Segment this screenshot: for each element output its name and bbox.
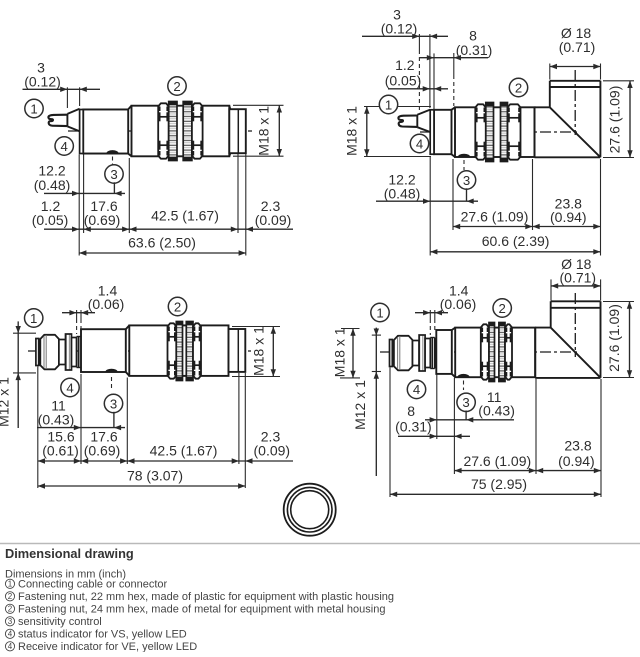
- svg-text:27.6 (1.09): 27.6 (1.09): [463, 453, 531, 469]
- svg-text:Dimensional drawing: Dimensional drawing: [5, 546, 134, 561]
- svg-text:(0.48): (0.48): [34, 177, 71, 193]
- svg-text:27.6 (1.09): 27.6 (1.09): [461, 209, 529, 225]
- svg-text:4: 4: [416, 136, 423, 151]
- svg-text:27.6 (1.09): 27.6 (1.09): [607, 86, 623, 154]
- svg-text:4: 4: [8, 642, 13, 651]
- svg-text:3: 3: [8, 617, 13, 626]
- svg-text:63.6 (2.50): 63.6 (2.50): [128, 235, 196, 251]
- svg-text:4: 4: [61, 139, 68, 154]
- svg-text:(0.61): (0.61): [42, 443, 79, 459]
- svg-text:2: 2: [174, 299, 181, 314]
- svg-text:3: 3: [462, 395, 469, 410]
- svg-text:(0.05): (0.05): [32, 212, 69, 228]
- svg-text:M18 x 1: M18 x 1: [332, 327, 348, 377]
- svg-text:4: 4: [413, 382, 420, 397]
- svg-text:Connecting cable or connector: Connecting cable or connector: [18, 579, 168, 591]
- svg-text:Fastening nut, 22 mm hex, made: Fastening nut, 22 mm hex, made of plasti…: [18, 591, 394, 603]
- svg-text:3: 3: [110, 167, 117, 182]
- svg-text:status indicator for VS, yello: status indicator for VS, yellow LED: [18, 629, 187, 641]
- svg-text:(0.94): (0.94): [550, 209, 587, 225]
- svg-text:42.5 (1.67): 42.5 (1.67): [151, 208, 219, 224]
- svg-text:(0.94): (0.94): [558, 453, 595, 469]
- svg-text:2: 2: [173, 79, 180, 94]
- svg-text:(0.69): (0.69): [84, 443, 121, 459]
- svg-text:75 (2.95): 75 (2.95): [471, 476, 527, 492]
- svg-text:(0.12): (0.12): [24, 74, 61, 90]
- svg-text:(0.69): (0.69): [84, 212, 121, 228]
- svg-text:Receive indicator for VE, yell: Receive indicator for VE, yellow LED: [18, 641, 197, 652]
- svg-text:(0.06): (0.06): [88, 296, 125, 312]
- svg-text:1: 1: [30, 101, 37, 116]
- svg-text:M12 x 1: M12 x 1: [352, 380, 368, 430]
- svg-text:78 (3.07): 78 (3.07): [127, 468, 183, 484]
- svg-text:1: 1: [30, 311, 37, 326]
- svg-text:(0.31): (0.31): [456, 42, 493, 58]
- svg-text:1: 1: [8, 580, 13, 589]
- svg-text:23.8: 23.8: [564, 438, 591, 454]
- svg-text:1: 1: [385, 97, 392, 112]
- svg-text:(0.05): (0.05): [385, 73, 422, 89]
- svg-text:M18 x 1: M18 x 1: [344, 106, 360, 156]
- svg-text:(0.12): (0.12): [381, 21, 418, 37]
- svg-text:(0.71): (0.71): [559, 39, 596, 55]
- svg-text:3: 3: [110, 396, 117, 411]
- svg-text:2: 2: [8, 592, 13, 601]
- svg-text:4: 4: [8, 630, 13, 639]
- svg-text:3: 3: [463, 173, 470, 188]
- svg-text:4: 4: [66, 380, 73, 395]
- svg-text:sensitivity control: sensitivity control: [18, 616, 102, 628]
- svg-text:(0.43): (0.43): [478, 403, 515, 419]
- svg-text:(0.71): (0.71): [560, 270, 597, 286]
- svg-text:60.6 (2.39): 60.6 (2.39): [482, 233, 550, 249]
- svg-text:M18 x 1: M18 x 1: [256, 106, 272, 156]
- svg-text:1.2: 1.2: [395, 57, 415, 73]
- svg-text:2: 2: [8, 605, 13, 614]
- svg-text:(0.06): (0.06): [440, 296, 477, 312]
- svg-text:1: 1: [376, 305, 383, 320]
- svg-text:8: 8: [407, 403, 415, 419]
- svg-text:42.5 (1.67): 42.5 (1.67): [150, 443, 218, 459]
- svg-text:(0.09): (0.09): [255, 212, 292, 228]
- svg-text:Fastening nut, 24 mm hex, made: Fastening nut, 24 mm hex, made of metal …: [18, 604, 385, 616]
- svg-text:(0.43): (0.43): [38, 412, 75, 428]
- svg-text:(0.09): (0.09): [254, 443, 291, 459]
- svg-text:27.6 (1.09): 27.6 (1.09): [606, 304, 622, 372]
- svg-text:(0.48): (0.48): [384, 186, 421, 202]
- svg-text:M18 x 1: M18 x 1: [251, 326, 267, 376]
- svg-text:2: 2: [515, 80, 522, 95]
- svg-text:M12 x 1: M12 x 1: [0, 377, 12, 427]
- svg-text:2: 2: [499, 301, 506, 316]
- svg-text:(0.31): (0.31): [395, 419, 432, 435]
